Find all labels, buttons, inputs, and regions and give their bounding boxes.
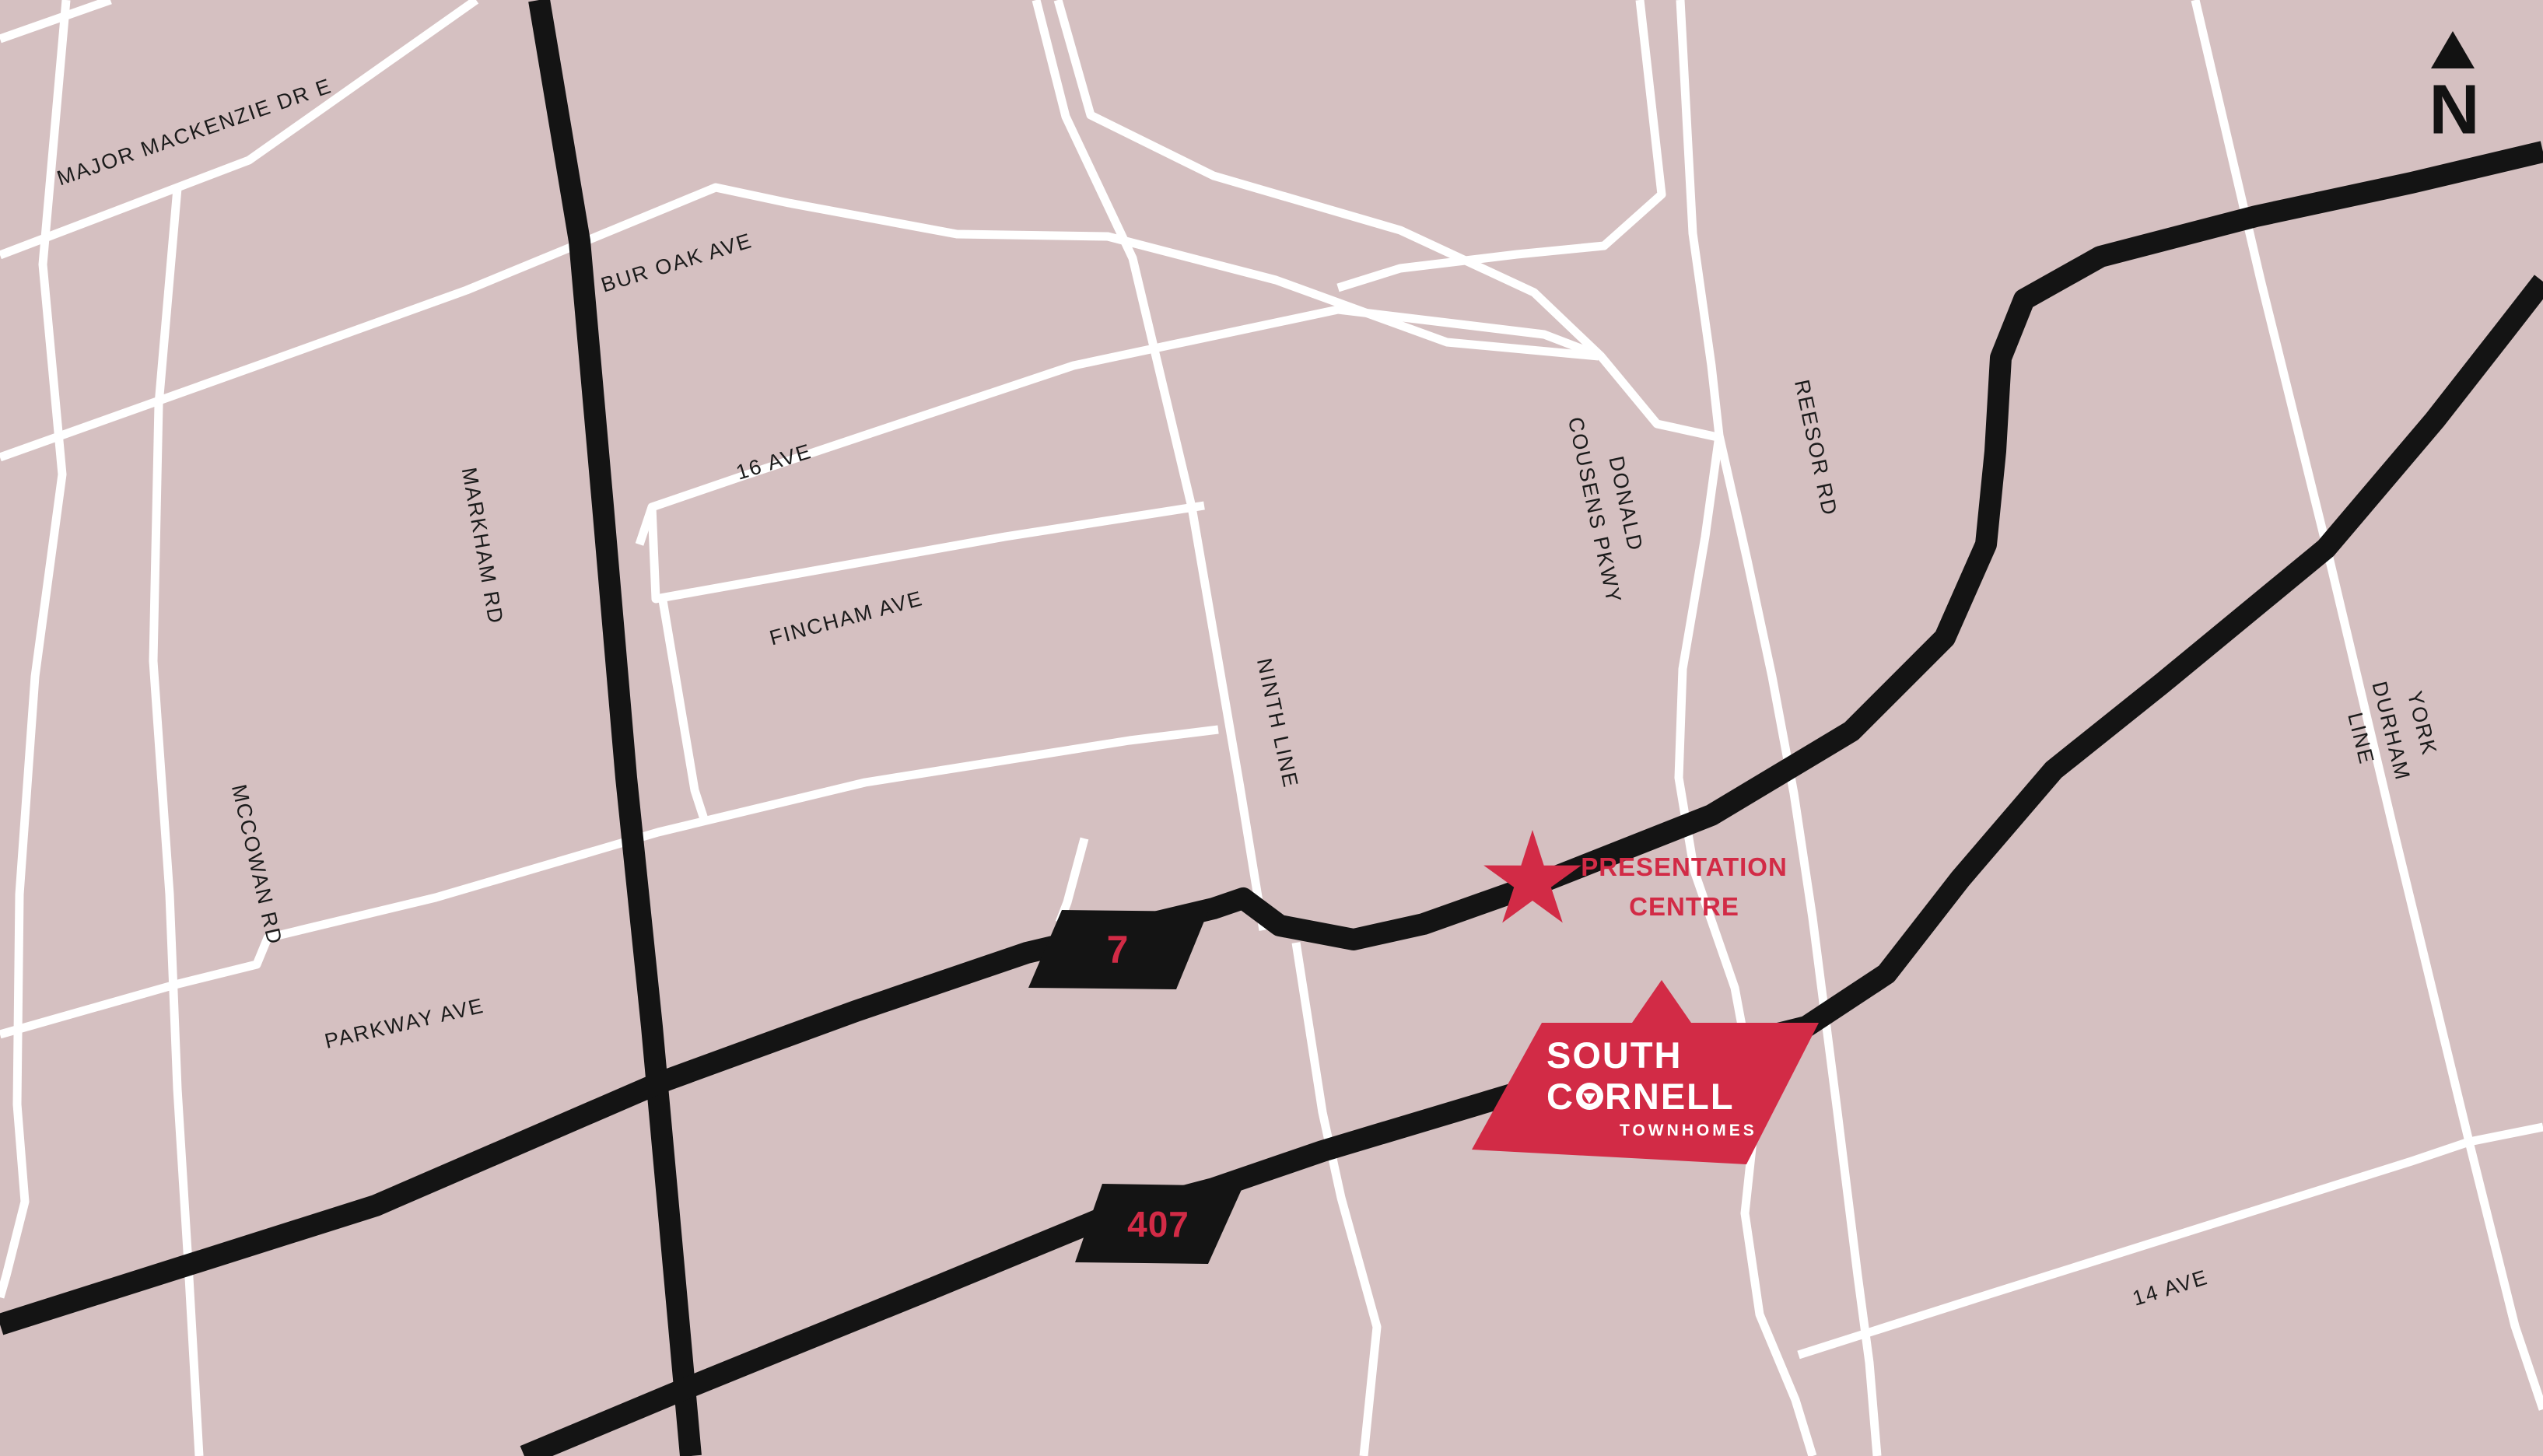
logo-cornell-suffix: RNELL — [1605, 1078, 1735, 1115]
highway-407-number: 407 — [1127, 1203, 1189, 1245]
logo-cornell-prefix: C — [1546, 1078, 1574, 1115]
location-map: MAJOR MACKENZIE DR E BUR OAK AVE 16 AVE … — [0, 0, 2543, 1456]
highway-7-number: 7 — [1107, 927, 1130, 972]
south-cornell-logo: SOUTH C RNELL TOWNHOMES — [1546, 1037, 1780, 1139]
logo-o-triangle-icon — [1576, 1083, 1603, 1110]
presentation-centre-label: PRESENTATION CENTRE — [1581, 847, 1788, 926]
logo-line-cornell: C RNELL — [1546, 1078, 1780, 1115]
logo-line-south: SOUTH — [1546, 1037, 1780, 1073]
north-label: N — [2429, 71, 2480, 151]
logo-line-townhomes: TOWNHOMES — [1546, 1122, 1780, 1139]
